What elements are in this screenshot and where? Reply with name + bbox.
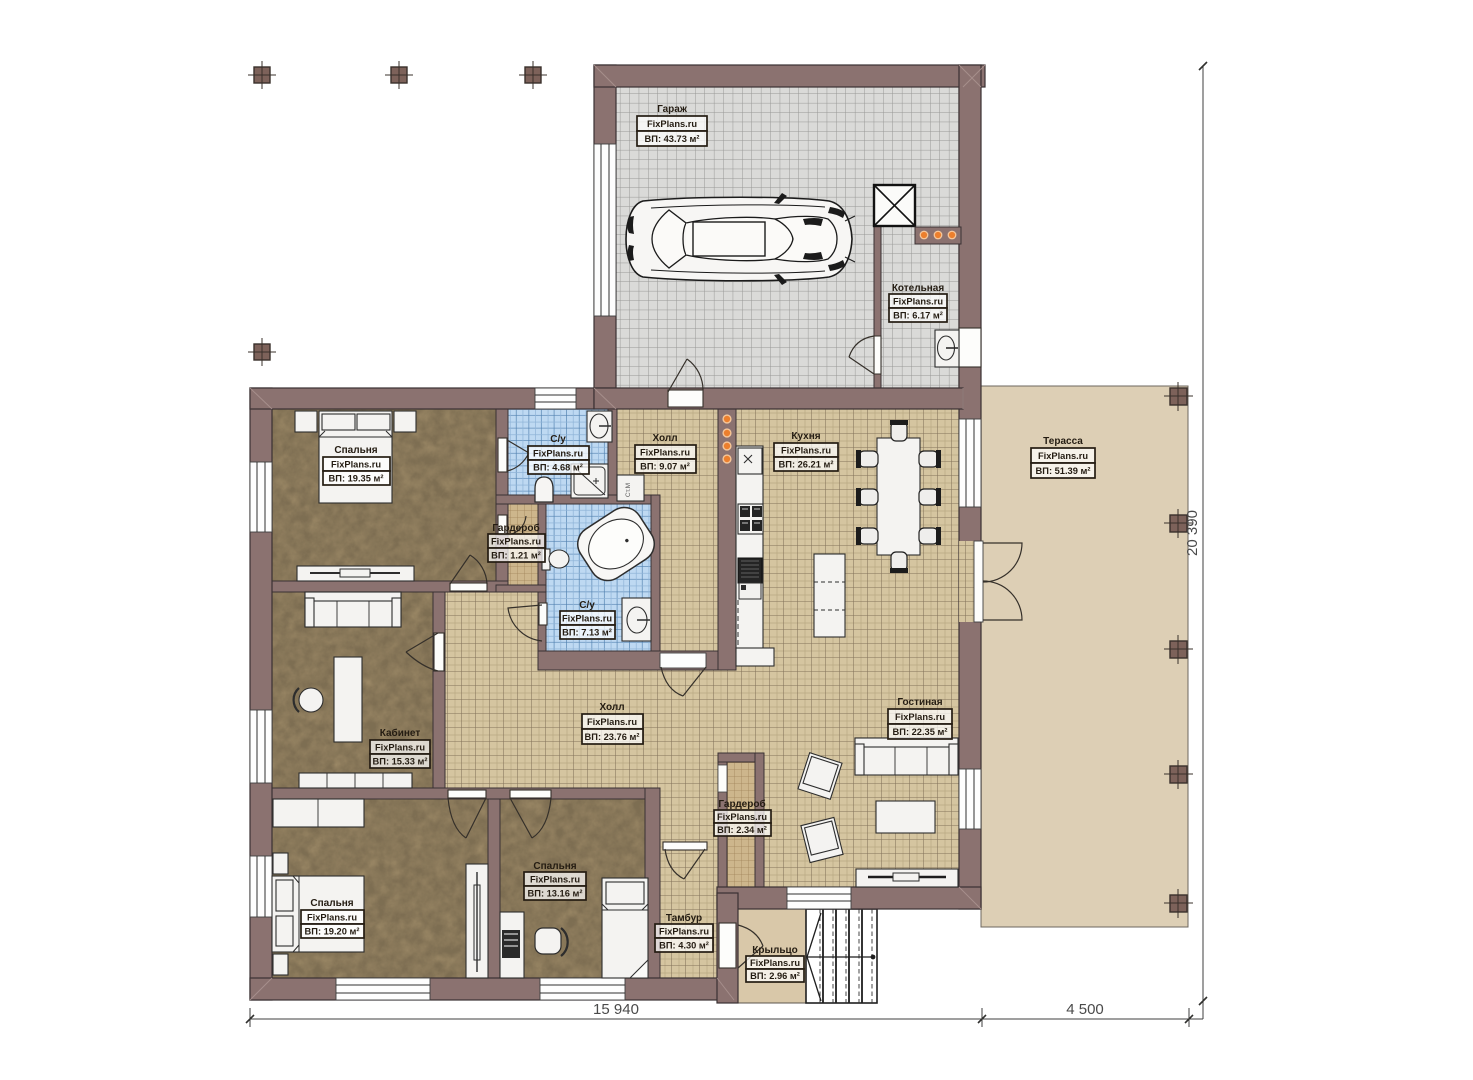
svg-text:FixPlans.ru: FixPlans.ru	[750, 958, 800, 968]
svg-text:ВП: 6.17 м²: ВП: 6.17 м²	[893, 311, 943, 321]
svg-text:Гардероб: Гардероб	[492, 522, 539, 534]
svg-text:FixPlans.ru: FixPlans.ru	[587, 717, 637, 727]
svg-text:Холл: Холл	[652, 433, 677, 444]
svg-text:Гардероб: Гардероб	[718, 798, 765, 810]
svg-text:FixPlans.ru: FixPlans.ru	[640, 448, 690, 458]
svg-text:Ст.М: Ст.М	[625, 483, 632, 497]
svg-text:4 500: 4 500	[1066, 1001, 1104, 1018]
svg-text:FixPlans.ru: FixPlans.ru	[491, 537, 541, 547]
svg-text:Гостиная: Гостиная	[897, 697, 942, 708]
svg-text:ВП: 2.96 м²: ВП: 2.96 м²	[750, 971, 800, 981]
svg-text:Кабинет: Кабинет	[380, 727, 421, 739]
svg-text:FixPlans.ru: FixPlans.ru	[781, 446, 831, 456]
svg-text:FixPlans.ru: FixPlans.ru	[659, 927, 709, 937]
svg-text:ВП: 15.33 м²: ВП: 15.33 м²	[373, 757, 428, 767]
svg-text:ВП: 51.39 м²: ВП: 51.39 м²	[1036, 466, 1091, 476]
svg-text:Спальня: Спальня	[533, 861, 576, 872]
svg-text:FixPlans.ru: FixPlans.ru	[331, 460, 381, 470]
svg-text:ВП: 26.21 м²: ВП: 26.21 м²	[779, 460, 834, 470]
svg-text:ВП: 23.76 м²: ВП: 23.76 м²	[585, 732, 640, 742]
svg-text:FixPlans.ru: FixPlans.ru	[530, 875, 580, 885]
svg-text:Спальня: Спальня	[334, 445, 377, 456]
svg-text:ВП: 7.13 м²: ВП: 7.13 м²	[562, 628, 612, 638]
svg-text:ВП: 4.68 м²: ВП: 4.68 м²	[533, 463, 583, 473]
svg-text:Тамбур: Тамбур	[666, 912, 702, 924]
svg-text:ВП: 1.21 м²: ВП: 1.21 м²	[491, 551, 541, 561]
svg-text:ВП: 13.16 м²: ВП: 13.16 м²	[528, 889, 583, 899]
svg-text:FixPlans.ru: FixPlans.ru	[893, 297, 943, 307]
svg-text:Кухня: Кухня	[791, 431, 820, 442]
svg-text:FixPlans.ru: FixPlans.ru	[562, 614, 612, 624]
svg-text:FixPlans.ru: FixPlans.ru	[895, 712, 945, 722]
svg-text:ВП: 22.35 м²: ВП: 22.35 м²	[893, 727, 948, 737]
svg-text:С/у: С/у	[579, 600, 595, 611]
svg-text:FixPlans.ru: FixPlans.ru	[1038, 451, 1088, 461]
svg-text:ВП: 19.20 м²: ВП: 19.20 м²	[305, 927, 360, 937]
svg-text:Спальня: Спальня	[310, 898, 353, 909]
svg-text:FixPlans.ru: FixPlans.ru	[533, 449, 583, 459]
svg-text:ВП: 43.73 м²: ВП: 43.73 м²	[645, 134, 700, 144]
svg-text:Терасса: Терасса	[1043, 436, 1083, 447]
svg-text:ВП: 2.34 м²: ВП: 2.34 м²	[717, 825, 767, 835]
svg-text:15 940: 15 940	[593, 1001, 639, 1018]
svg-text:ВП: 9.07 м²: ВП: 9.07 м²	[640, 462, 690, 472]
svg-text:С/у: С/у	[550, 434, 566, 445]
svg-text:FixPlans.ru: FixPlans.ru	[307, 913, 357, 923]
svg-text:FixPlans.ru: FixPlans.ru	[375, 743, 425, 753]
svg-text:FixPlans.ru: FixPlans.ru	[717, 812, 767, 822]
svg-text:ВП: 19.35 м²: ВП: 19.35 м²	[329, 474, 384, 484]
svg-text:Крыльцо: Крыльцо	[752, 945, 798, 956]
svg-text:ВП: 4.30 м²: ВП: 4.30 м²	[659, 941, 709, 951]
svg-text:Котельная: Котельная	[892, 283, 945, 294]
svg-text:20 390: 20 390	[1184, 510, 1201, 556]
svg-text:Холл: Холл	[599, 702, 624, 713]
svg-text:FixPlans.ru: FixPlans.ru	[647, 119, 697, 129]
svg-text:Гараж: Гараж	[657, 104, 688, 115]
